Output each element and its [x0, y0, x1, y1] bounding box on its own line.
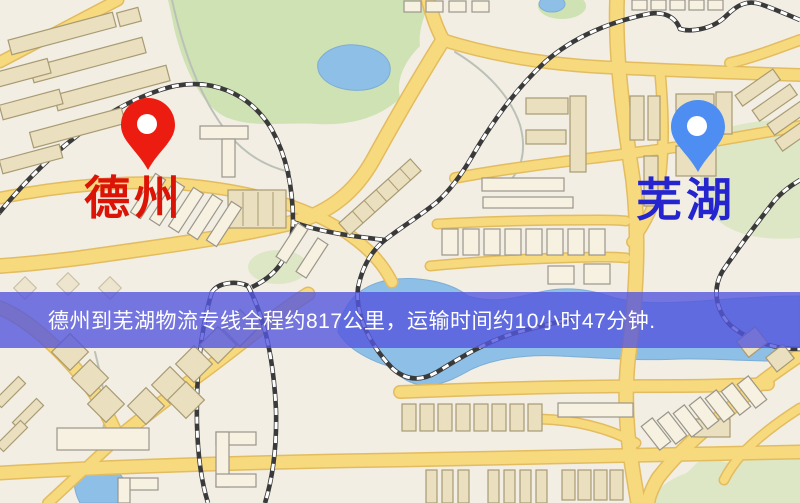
route-info-text: 德州到芜湖物流专线全程约817公里，运输时间约10小时47分钟. [0, 305, 656, 335]
map-canvas[interactable]: 德州 芜湖 德州到芜湖物流专线全程约817公里，运输时间约10小时47分钟. [0, 0, 800, 503]
lake [318, 45, 391, 91]
origin-city-label: 德州 [84, 176, 184, 222]
route-info-banner: 德州到芜湖物流专线全程约817公里，运输时间约10小时47分钟. [0, 292, 800, 348]
map-artwork [0, 0, 800, 503]
destination-city-label: 芜湖 [636, 178, 736, 224]
